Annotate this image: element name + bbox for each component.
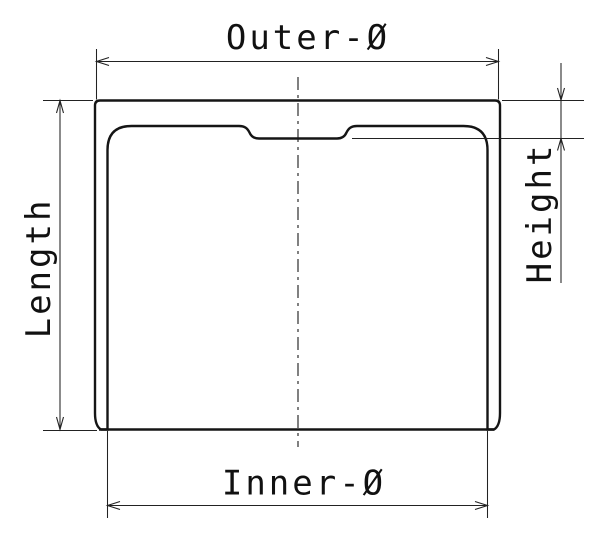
inner-diameter-label: Inner-Ø — [222, 464, 386, 504]
height-label: Height — [520, 143, 560, 284]
part-cross-section — [95, 101, 584, 430]
height-dimension: Height — [502, 63, 584, 283]
length-dimension: Length — [19, 101, 97, 431]
drawing-svg: Outer-Ø Inner-Ø Length Height — [0, 0, 600, 553]
outer-diameter-label: Outer-Ø — [226, 18, 390, 58]
technical-drawing: Outer-Ø Inner-Ø Length Height — [0, 0, 600, 553]
length-label: Length — [19, 198, 59, 339]
